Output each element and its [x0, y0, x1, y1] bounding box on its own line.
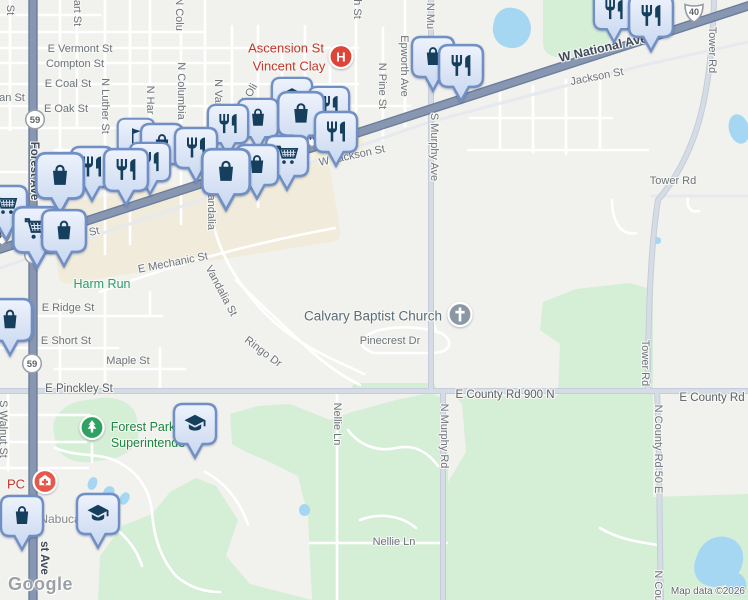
- street-label: E Coal St: [45, 78, 91, 90]
- street-label: Tower Rd: [639, 340, 651, 386]
- street-label: N Pine St: [376, 63, 388, 109]
- school-pin[interactable]: [172, 402, 218, 460]
- street-label: Pinecrest Dr: [360, 335, 421, 347]
- park-icon[interactable]: [77, 413, 107, 448]
- shopping-pin[interactable]: [40, 208, 88, 269]
- street-label: Epworth Ave: [398, 35, 410, 97]
- street-label: N Luther St: [99, 78, 111, 134]
- street-label: Compton St: [46, 58, 104, 70]
- street-label: St: [4, 5, 16, 15]
- street-label: E Oak St: [44, 103, 88, 115]
- hospital-label[interactable]: Vincent Clay: [253, 59, 326, 74]
- collector: E County Rd 900 N: [455, 389, 554, 401]
- street-label: E Ridge St: [42, 302, 95, 314]
- street-label: N County Rd 50 E: [652, 405, 664, 494]
- street-label: N Cou: [652, 570, 664, 600]
- street-label: E Short St: [41, 335, 91, 347]
- church-icon[interactable]: [445, 300, 475, 335]
- park-label[interactable]: Forest Park: [111, 420, 176, 434]
- street-label: N Mu: [424, 3, 436, 29]
- restaurant-pin[interactable]: [102, 147, 150, 208]
- street-label: Tower Rd: [650, 175, 696, 187]
- street-label: S Walnut St: [0, 400, 9, 458]
- street-label: E Vermont St: [48, 43, 113, 55]
- hospital-icon[interactable]: H: [326, 42, 356, 77]
- street-label: N Colu: [173, 0, 185, 31]
- map-attribution: Map data ©2026: [671, 586, 745, 597]
- street-label: Maple St: [106, 355, 149, 367]
- collector: E Pinckley St: [45, 383, 113, 395]
- street-label: h St: [351, 0, 363, 19]
- street-label: N Columbia: [175, 62, 187, 119]
- street-label: an St: [0, 92, 25, 104]
- route-shield-40: 40: [681, 0, 707, 31]
- restaurant-pin[interactable]: [437, 43, 485, 104]
- restaurant-pin[interactable]: [627, 0, 675, 54]
- poi[interactable]: Calvary Baptist Church: [304, 309, 442, 324]
- map-canvas[interactable]: E Vermont StCompton StE Coal StE Oak Sta…: [0, 0, 748, 600]
- street-label: Nellie Ln: [331, 403, 343, 446]
- school-pin[interactable]: [75, 492, 121, 550]
- street-label: N Murphy Rd: [438, 404, 450, 469]
- shopping-pin[interactable]: [0, 494, 45, 552]
- street-label: S Murphy Ave: [428, 113, 440, 181]
- svg-text:59: 59: [27, 359, 38, 370]
- street-label: N Har: [144, 86, 156, 115]
- google-logo[interactable]: Google: [8, 574, 73, 595]
- collector: E County Rd: [679, 392, 744, 404]
- svg-text:40: 40: [689, 7, 699, 17]
- street-label: art St: [71, 0, 83, 26]
- shopping-pin[interactable]: [200, 147, 252, 213]
- svg-text:59: 59: [30, 115, 41, 126]
- hospital-label[interactable]: Ascension St: [248, 41, 324, 56]
- svg-text:H: H: [336, 49, 345, 64]
- street-label: Tower Rd: [706, 27, 718, 73]
- street-label: Nellie Ln: [373, 536, 416, 548]
- restaurant-pin[interactable]: [313, 110, 359, 168]
- route-shield-59: 59: [24, 109, 46, 136]
- water-label: Harm Run: [74, 277, 131, 291]
- shopping-pin[interactable]: [0, 297, 34, 358]
- hospital-label[interactable]: PC: [7, 477, 25, 492]
